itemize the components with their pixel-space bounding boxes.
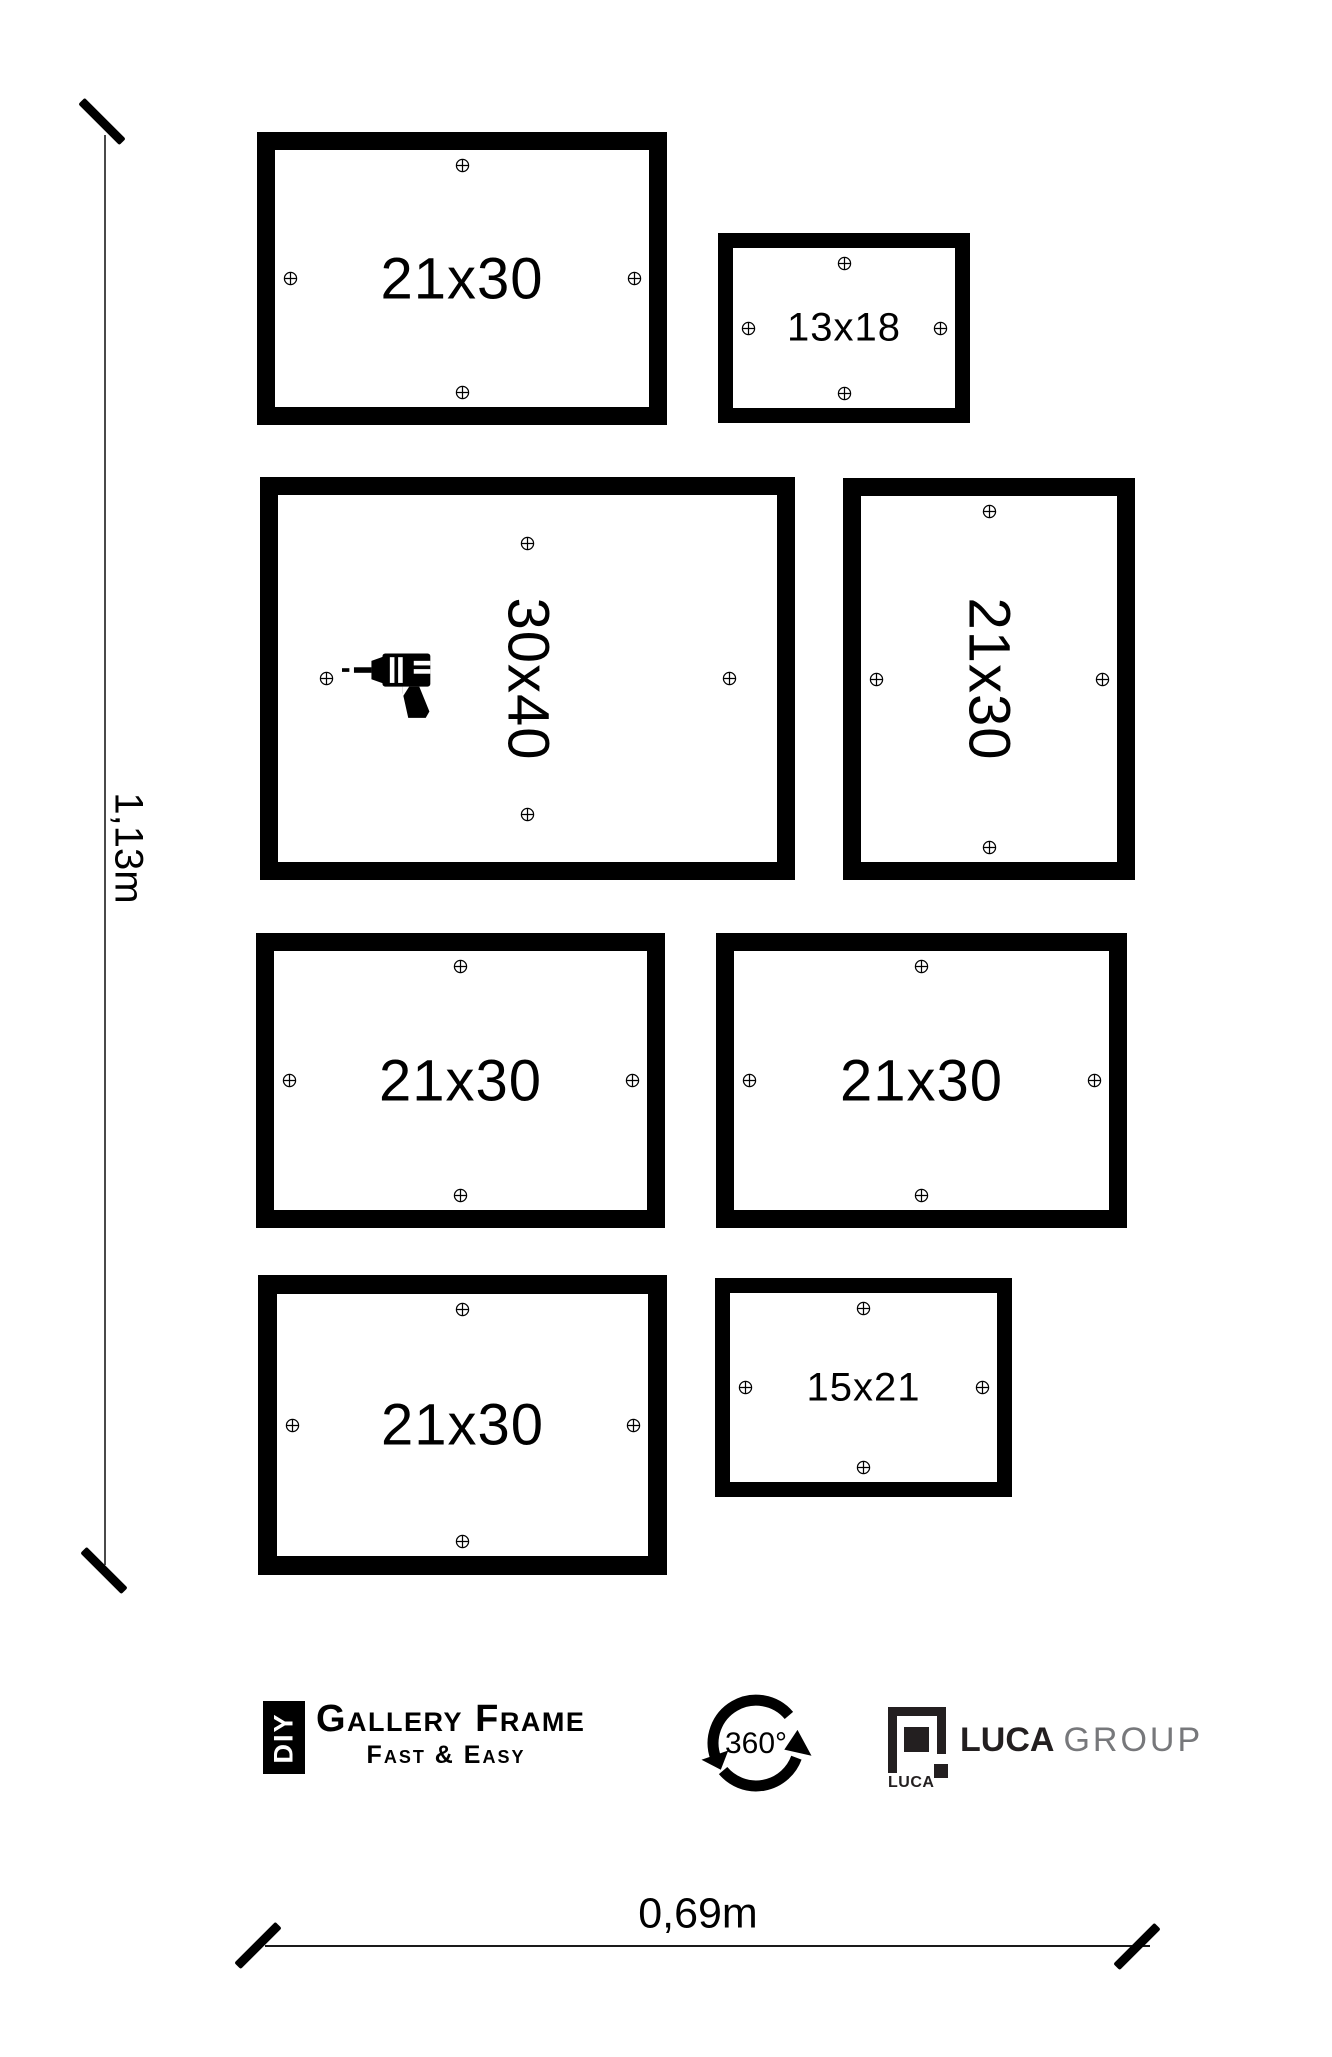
frame-size-label: 21x30 [379, 1047, 542, 1114]
drill-point-marker-icon [738, 1380, 753, 1395]
frame-size-label: 15x21 [807, 1365, 921, 1410]
width-dimension-label: 0,69m [638, 1890, 758, 1939]
drill-point-marker-icon [837, 256, 852, 271]
frame-size-label: 13x18 [787, 306, 901, 351]
height-dimension-tick-top-icon [78, 98, 125, 145]
frame-size-label: 21x30 [380, 245, 543, 312]
frame-21x30: 21x30 [843, 478, 1135, 880]
gallery-frame-template-diagram: 21x3013x1830x4021x3021x3021x3021x3015x21… [0, 0, 1332, 2057]
drill-point-marker-icon [455, 158, 470, 173]
drill-point-marker-icon [1087, 1073, 1102, 1088]
drill-point-marker-icon [975, 1380, 990, 1395]
drill-point-marker-icon [627, 271, 642, 286]
drill-point-marker-icon [869, 672, 884, 687]
drill-point-marker-icon [914, 1188, 929, 1203]
drill-point-marker-icon [285, 1418, 300, 1433]
drill-point-marker-icon [982, 840, 997, 855]
drill-point-marker-icon [455, 1534, 470, 1549]
frame-size-label: 30x40 [494, 597, 561, 760]
drill-point-marker-icon [625, 1073, 640, 1088]
width-dimension-line [265, 1945, 1150, 1947]
drill-point-marker-icon [1095, 672, 1110, 687]
drill-icon [342, 645, 434, 719]
diy-logo: DIY [263, 1701, 305, 1774]
luca-logo-icon: LUCA [888, 1707, 950, 1791]
height-dimension-label: 1,13m [106, 792, 151, 903]
drill-point-marker-icon [283, 271, 298, 286]
drill-point-marker-icon [626, 1418, 641, 1433]
drill-point-marker-icon [319, 671, 334, 686]
drill-point-marker-icon [837, 386, 852, 401]
drill-point-marker-icon [933, 321, 948, 336]
drill-point-marker-icon [520, 536, 535, 551]
frame-15x21: 15x21 [715, 1278, 1012, 1497]
frame-21x30: 21x30 [256, 933, 665, 1228]
drill-point-marker-icon [741, 321, 756, 336]
drill-point-marker-icon [914, 959, 929, 974]
drill-point-marker-icon [722, 671, 737, 686]
luca-icon-label: LUCA [888, 1774, 934, 1791]
drill-point-marker-icon [282, 1073, 297, 1088]
frame-size-label: 21x30 [840, 1047, 1003, 1114]
drill-point-marker-icon [520, 807, 535, 822]
brand-tagline: Fast & Easy [316, 1741, 576, 1770]
frame-size-label: 21x30 [381, 1392, 544, 1459]
rotation-360-icon: 360° [700, 1686, 812, 1798]
frame-30x40: 30x40 [260, 477, 795, 880]
frame-13x18: 13x18 [718, 233, 970, 423]
frame-21x30: 21x30 [257, 132, 667, 425]
drill-point-marker-icon [742, 1073, 757, 1088]
luca-wordmark-bold: LUCA [960, 1721, 1054, 1759]
drill-point-marker-icon [453, 1188, 468, 1203]
frame-size-label: 21x30 [956, 597, 1023, 760]
drill-point-marker-icon [856, 1460, 871, 1475]
diy-logo-label: DIY [269, 1712, 300, 1763]
luca-group-wordmark: LUCAGROUP [960, 1723, 1203, 1757]
drill-point-marker-icon [453, 959, 468, 974]
brand-name: Gallery Frame [316, 1698, 585, 1741]
frame-21x30: 21x30 [258, 1275, 667, 1575]
drill-point-marker-icon [455, 1302, 470, 1317]
drill-point-marker-icon [982, 504, 997, 519]
rotation-360-label: 360° [725, 1727, 787, 1760]
drill-point-marker-icon [455, 385, 470, 400]
frame-21x30: 21x30 [716, 933, 1127, 1228]
luca-wordmark-light: GROUP [1063, 1721, 1203, 1759]
drill-point-marker-icon [856, 1301, 871, 1316]
